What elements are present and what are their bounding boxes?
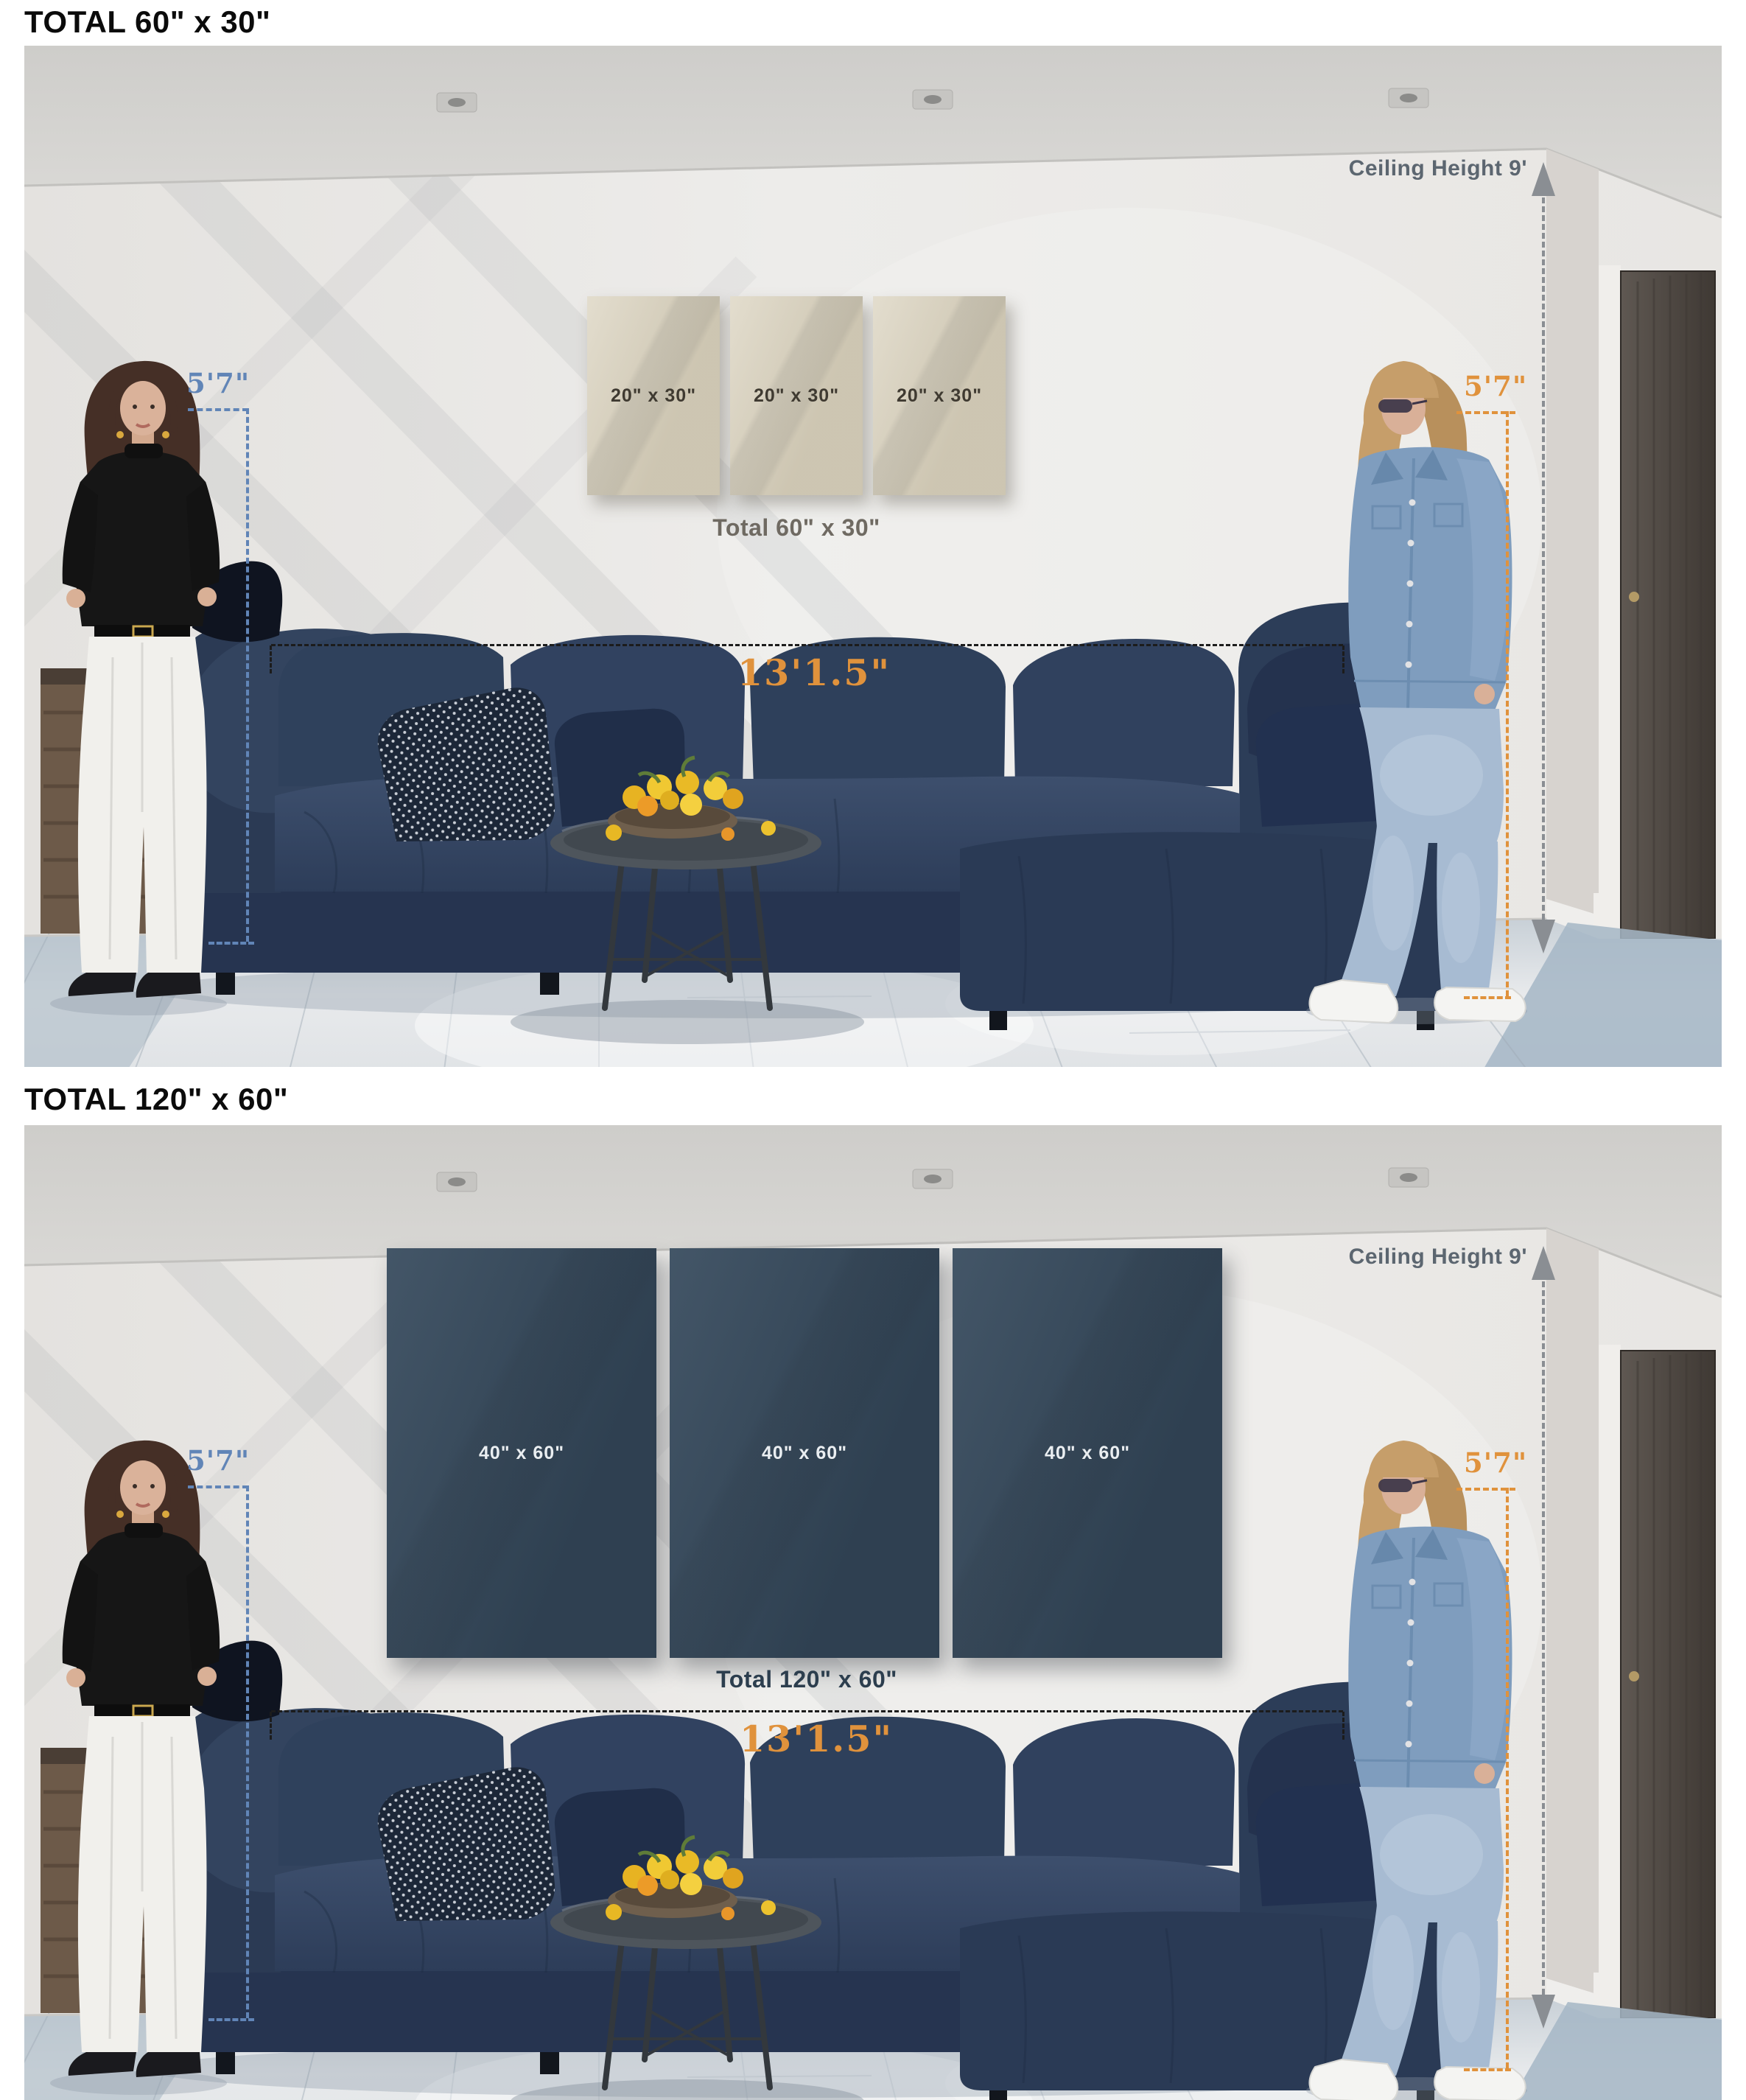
canvas-size-label: 40" x 60" xyxy=(479,1443,564,1464)
canvas-print-2: 40" x 60" xyxy=(670,1248,939,1658)
ceiling-height-label: Ceiling Height 9' xyxy=(1233,156,1527,181)
canvas-print-2: 20" x 30" xyxy=(730,296,863,495)
person-height-label-left: 5'7" xyxy=(186,367,250,399)
sofa-width-label: 13'1.5" xyxy=(595,1718,1037,1760)
canvas-size-label: 20" x 30" xyxy=(754,385,839,407)
arrow-up-icon xyxy=(1532,1246,1555,1280)
height-marker-line xyxy=(246,1485,249,2018)
height-marker-tick xyxy=(1464,2068,1511,2071)
height-marker-line xyxy=(246,408,249,942)
ceiling-height-label: Ceiling Height 9' xyxy=(1233,1245,1527,1270)
height-marker-tick xyxy=(1464,996,1511,999)
dimension-end-tick xyxy=(270,1712,272,1740)
room-scene xyxy=(24,46,1722,1067)
person-height-label-left: 5'7" xyxy=(186,1444,250,1477)
height-marker-underline xyxy=(188,408,248,411)
panel-title-120x60: TOTAL 120" x 60" xyxy=(24,1082,288,1117)
canvas-print-3: 40" x 60" xyxy=(953,1248,1222,1658)
total-size-label: Total 120" x 60" xyxy=(586,1666,1028,1693)
canvas-print-1: 20" x 30" xyxy=(587,296,720,495)
dimension-end-tick xyxy=(1342,1712,1344,1740)
canvas-size-label: 40" x 60" xyxy=(1045,1443,1130,1464)
height-marker-tick xyxy=(208,2018,254,2021)
ceiling-height-line xyxy=(1542,197,1545,920)
canvas-size-label: 20" x 30" xyxy=(897,385,982,407)
arrow-up-icon xyxy=(1532,162,1555,196)
canvas-size-label: 40" x 60" xyxy=(762,1443,847,1464)
ceiling-height-line xyxy=(1542,1281,1545,1995)
room-photo-120x60: 40" x 60" 40" x 60" 40" x 60" Total 120"… xyxy=(24,1125,1722,2100)
height-marker-underline xyxy=(188,1485,248,1488)
canvas-print-3: 20" x 30" xyxy=(873,296,1006,495)
canvas-print-1: 40" x 60" xyxy=(387,1248,656,1658)
total-size-label: Total 60" x 30" xyxy=(575,514,1017,542)
size-guide-page: TOTAL 60" x 30" 20" x 30" 20" x 30" 20" … xyxy=(0,0,1746,2100)
height-marker-tick xyxy=(208,942,254,945)
panel-title-60x30: TOTAL 60" x 30" xyxy=(24,4,270,40)
dimension-end-tick xyxy=(270,645,272,673)
arrow-down-icon xyxy=(1532,920,1555,953)
sofa-width-dimension-line xyxy=(271,1710,1343,1712)
sofa-width-label: 13'1.5" xyxy=(593,651,1035,694)
height-marker-line xyxy=(1506,1488,1509,2068)
sofa-width-dimension-line xyxy=(271,644,1343,646)
height-marker-line xyxy=(1506,411,1509,996)
canvas-size-label: 20" x 30" xyxy=(611,385,696,407)
room-photo-60x30: 20" x 30" 20" x 30" 20" x 30" Total 60" … xyxy=(24,46,1722,1067)
dimension-end-tick xyxy=(1342,645,1344,673)
person-height-label-right: 5'7" xyxy=(1464,1446,1527,1479)
person-height-label-right: 5'7" xyxy=(1464,370,1527,402)
arrow-down-icon xyxy=(1532,1995,1555,2029)
